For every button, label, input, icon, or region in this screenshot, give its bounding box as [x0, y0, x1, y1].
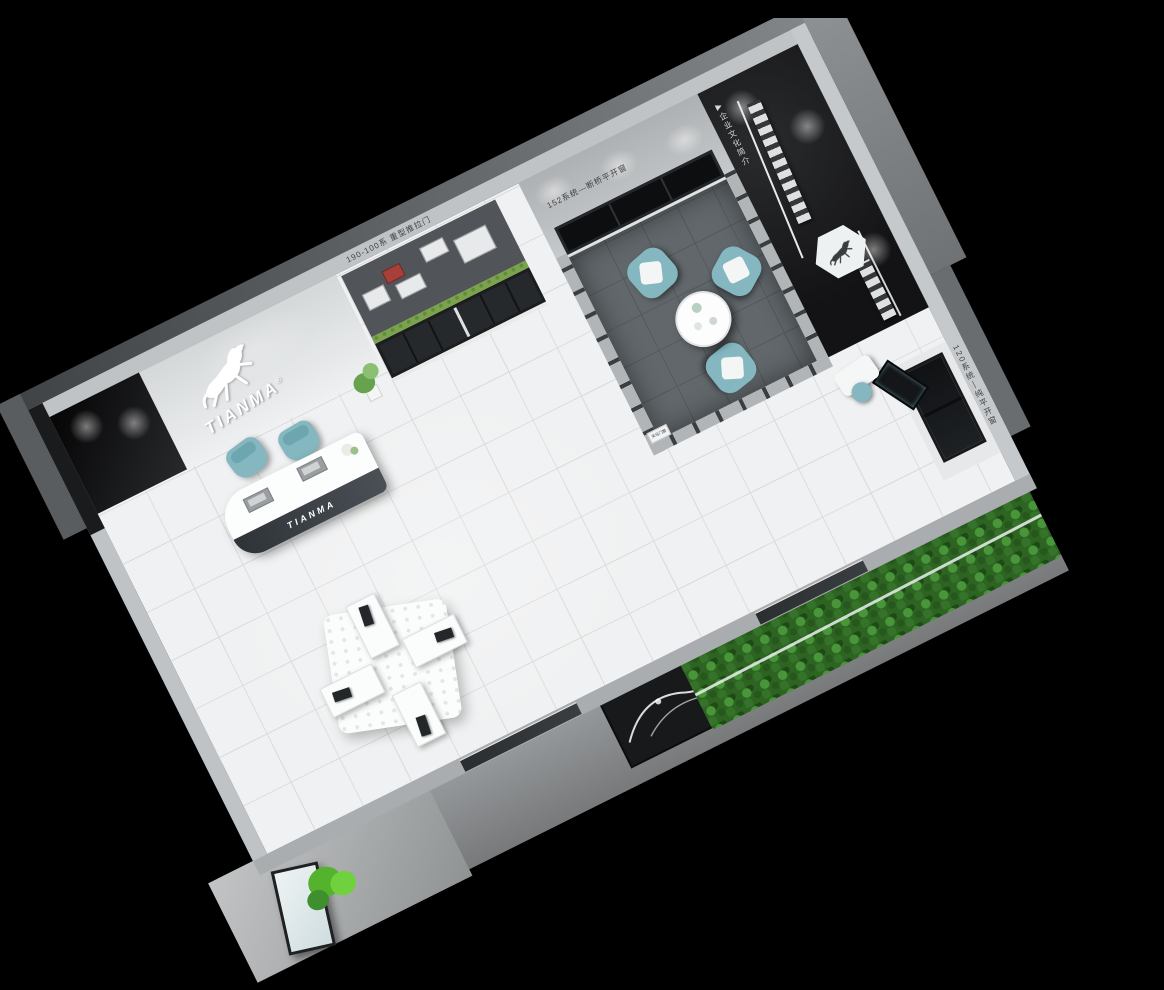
corner-sample [434, 627, 454, 642]
desk-monitor [243, 487, 275, 513]
desk-monitor [296, 456, 328, 482]
showroom-render: TIANMA® 190-100系 重型推拉门 152系统—断 [0, 18, 1164, 990]
picture-frame [419, 237, 449, 263]
corner-sample [332, 687, 352, 702]
showroom-building: TIANMA® 190-100系 重型推拉门 152系统—断 [28, 23, 1037, 876]
picture-frame [453, 224, 497, 263]
horse-icon [822, 234, 860, 269]
table-flowers [690, 301, 703, 314]
corner-sample [416, 715, 432, 737]
picture-frame [362, 284, 392, 311]
corner-sample [358, 605, 374, 627]
